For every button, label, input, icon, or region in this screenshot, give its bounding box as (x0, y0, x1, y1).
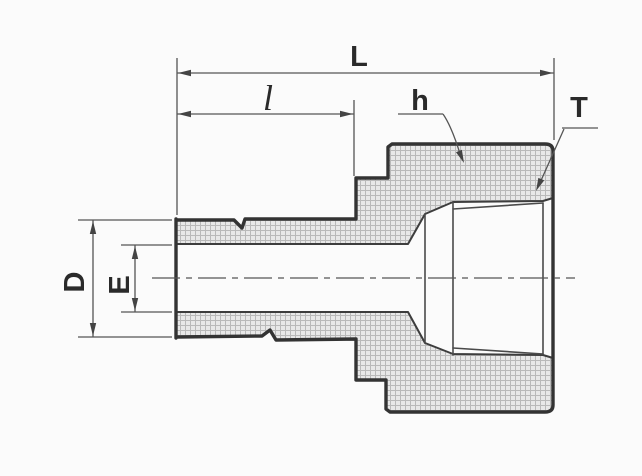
dimension-l: l (177, 78, 354, 176)
label-h: h (411, 85, 429, 117)
drawing-canvas: L l D E h T (0, 0, 642, 476)
section-top-half (176, 144, 553, 244)
section-bottom-half (176, 312, 553, 412)
fitting-cross-section-drawing: L l D E h T (0, 0, 642, 476)
dim-label-l: l (263, 78, 273, 118)
label-T: T (570, 92, 588, 124)
dim-label-D: D (59, 272, 91, 293)
dim-label-E: E (104, 275, 136, 294)
dim-label-L: L (350, 41, 368, 73)
leader-T: T (533, 92, 598, 192)
